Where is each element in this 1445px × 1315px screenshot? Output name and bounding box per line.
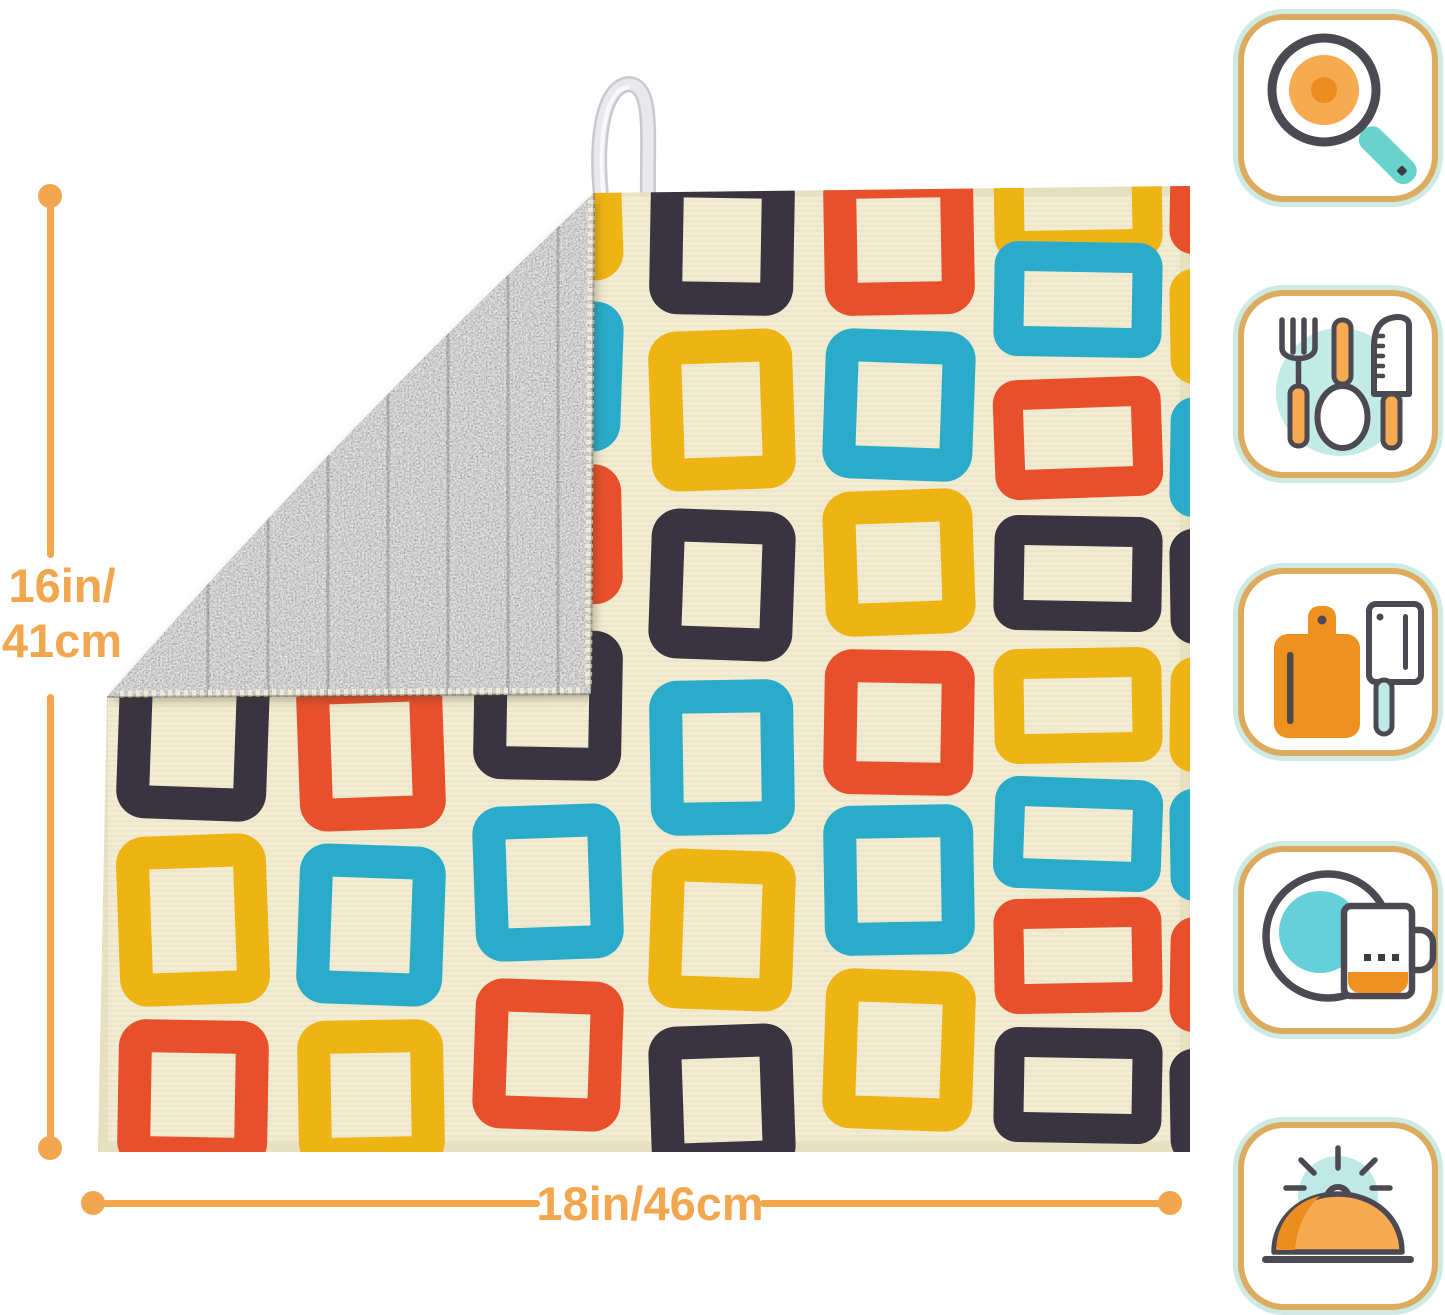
pattern-square-yellow — [297, 1019, 446, 1172]
width-dimension-dot-right — [1158, 1191, 1182, 1215]
product-image: 16in/ 41cm 18in/46cm — [0, 0, 1445, 1315]
height-dimension-line-top — [47, 200, 54, 558]
pattern-square-teal — [992, 775, 1164, 893]
height-dimension-dot-bottom — [38, 1136, 62, 1160]
pattern-square-red — [823, 649, 976, 797]
width-dimension-label: 18in/46cm — [535, 1176, 765, 1231]
width-dimension-dot-left — [81, 1191, 105, 1215]
pattern-square-teal — [821, 327, 976, 482]
pattern-square-red — [471, 977, 624, 1132]
pattern-square-yellow — [821, 967, 976, 1132]
cutlery-icon — [1238, 290, 1438, 478]
width-dimension-line-left — [92, 1200, 540, 1207]
width-dimension-line-right — [760, 1200, 1170, 1207]
pattern-square-red — [117, 1019, 270, 1172]
height-label-line2: 41cm — [0, 613, 124, 668]
pattern-square-dark — [993, 1027, 1163, 1145]
pattern-square-teal — [649, 679, 796, 836]
pattern-square-yellow — [822, 487, 977, 637]
pattern-square-teal — [295, 843, 446, 1008]
pattern-square-yellow — [647, 328, 796, 493]
pattern-square-red — [823, 164, 976, 317]
pattern-square-teal — [993, 241, 1163, 359]
pattern-square-yellow — [115, 832, 271, 1007]
height-dimension-label: 16in/ 41cm — [0, 558, 124, 668]
cutting-board-cleaver-icon — [1238, 568, 1438, 756]
serving-cloche-icon — [1238, 1122, 1438, 1310]
pattern-square-dark — [993, 515, 1163, 633]
height-label-line1: 16in/ — [0, 558, 124, 613]
pattern-square-red — [992, 375, 1164, 501]
frying-pan-search-icon — [1238, 14, 1438, 202]
height-dimension-line-bottom — [47, 694, 54, 1142]
pattern-square-teal — [823, 804, 976, 957]
pattern-square-red — [993, 897, 1163, 1015]
plate-mug-icon — [1238, 846, 1438, 1034]
pattern-square-yellow — [647, 848, 796, 1013]
folded-corner-back — [88, 178, 610, 710]
pattern-square-dark — [647, 508, 796, 663]
height-dimension-dot-top — [38, 184, 62, 208]
pattern-square-dark — [647, 1023, 796, 1178]
pattern-square-yellow — [993, 647, 1163, 765]
pattern-square-teal — [471, 802, 624, 962]
